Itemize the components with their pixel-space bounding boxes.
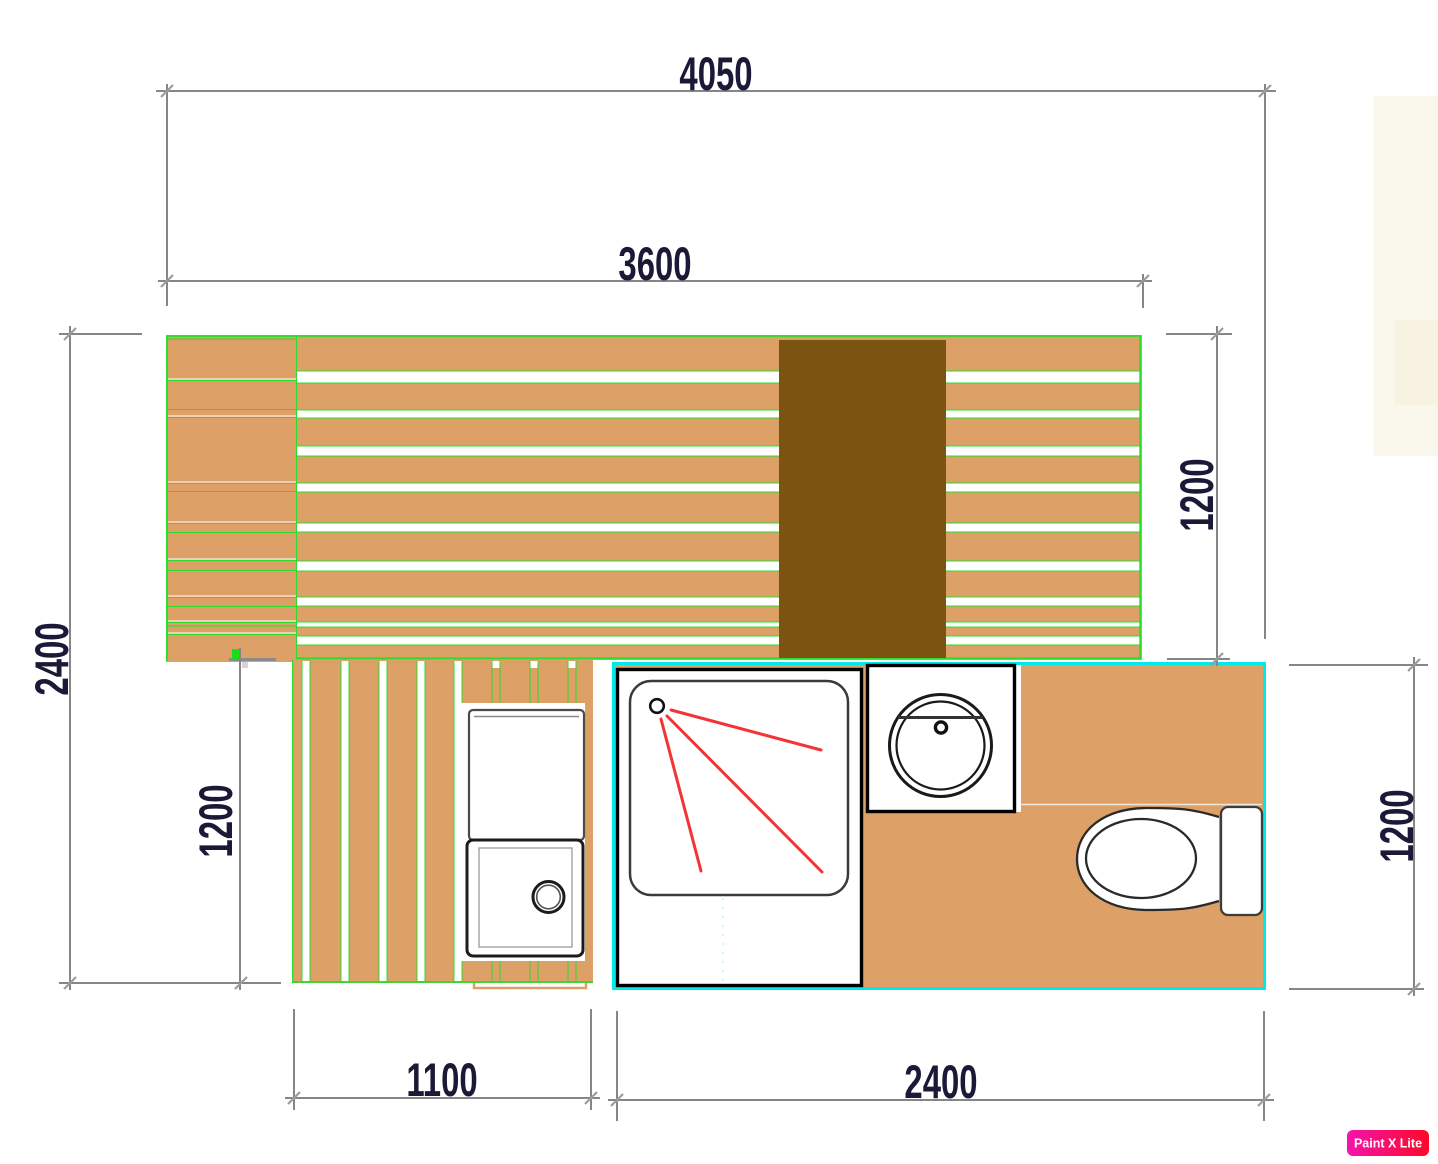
svg-text:Paint X Lite: Paint X Lite xyxy=(1354,1137,1422,1151)
svg-text:1200: 1200 xyxy=(1370,789,1423,862)
svg-text:2400: 2400 xyxy=(904,1055,977,1108)
svg-text:1200: 1200 xyxy=(1170,458,1223,531)
svg-text:1100: 1100 xyxy=(406,1053,477,1106)
svg-text:3600: 3600 xyxy=(618,237,691,290)
svg-text:4050: 4050 xyxy=(679,47,752,100)
svg-text:1200: 1200 xyxy=(189,784,242,857)
svg-text:2400: 2400 xyxy=(25,622,78,695)
